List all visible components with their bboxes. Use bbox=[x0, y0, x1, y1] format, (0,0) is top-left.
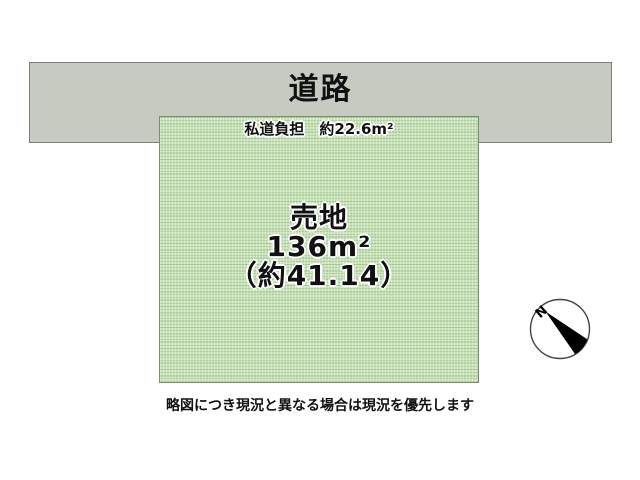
private-road-burden-label: 私道負担 約22.6m² bbox=[160, 120, 478, 138]
north-compass-icon: N bbox=[528, 297, 592, 361]
area-square-meters: 136m² bbox=[160, 232, 478, 261]
road-label: 道路 bbox=[30, 75, 611, 105]
plot-center-text: 売地 136m² （約41.14） bbox=[160, 203, 478, 290]
site-plan-diagram: 道路 私道負担 約22.6m² 売地 136m² （約41.14） N 略図につ… bbox=[0, 0, 640, 480]
disclaimer-caption: 略図につき現況と異なる場合は現況を優先します bbox=[0, 398, 640, 415]
sale-land-label: 売地 bbox=[160, 203, 478, 232]
land-plot-area: 私道負担 約22.6m² 売地 136m² （約41.14） bbox=[159, 116, 479, 383]
area-tsubo-approx: （約41.14） bbox=[160, 261, 478, 290]
